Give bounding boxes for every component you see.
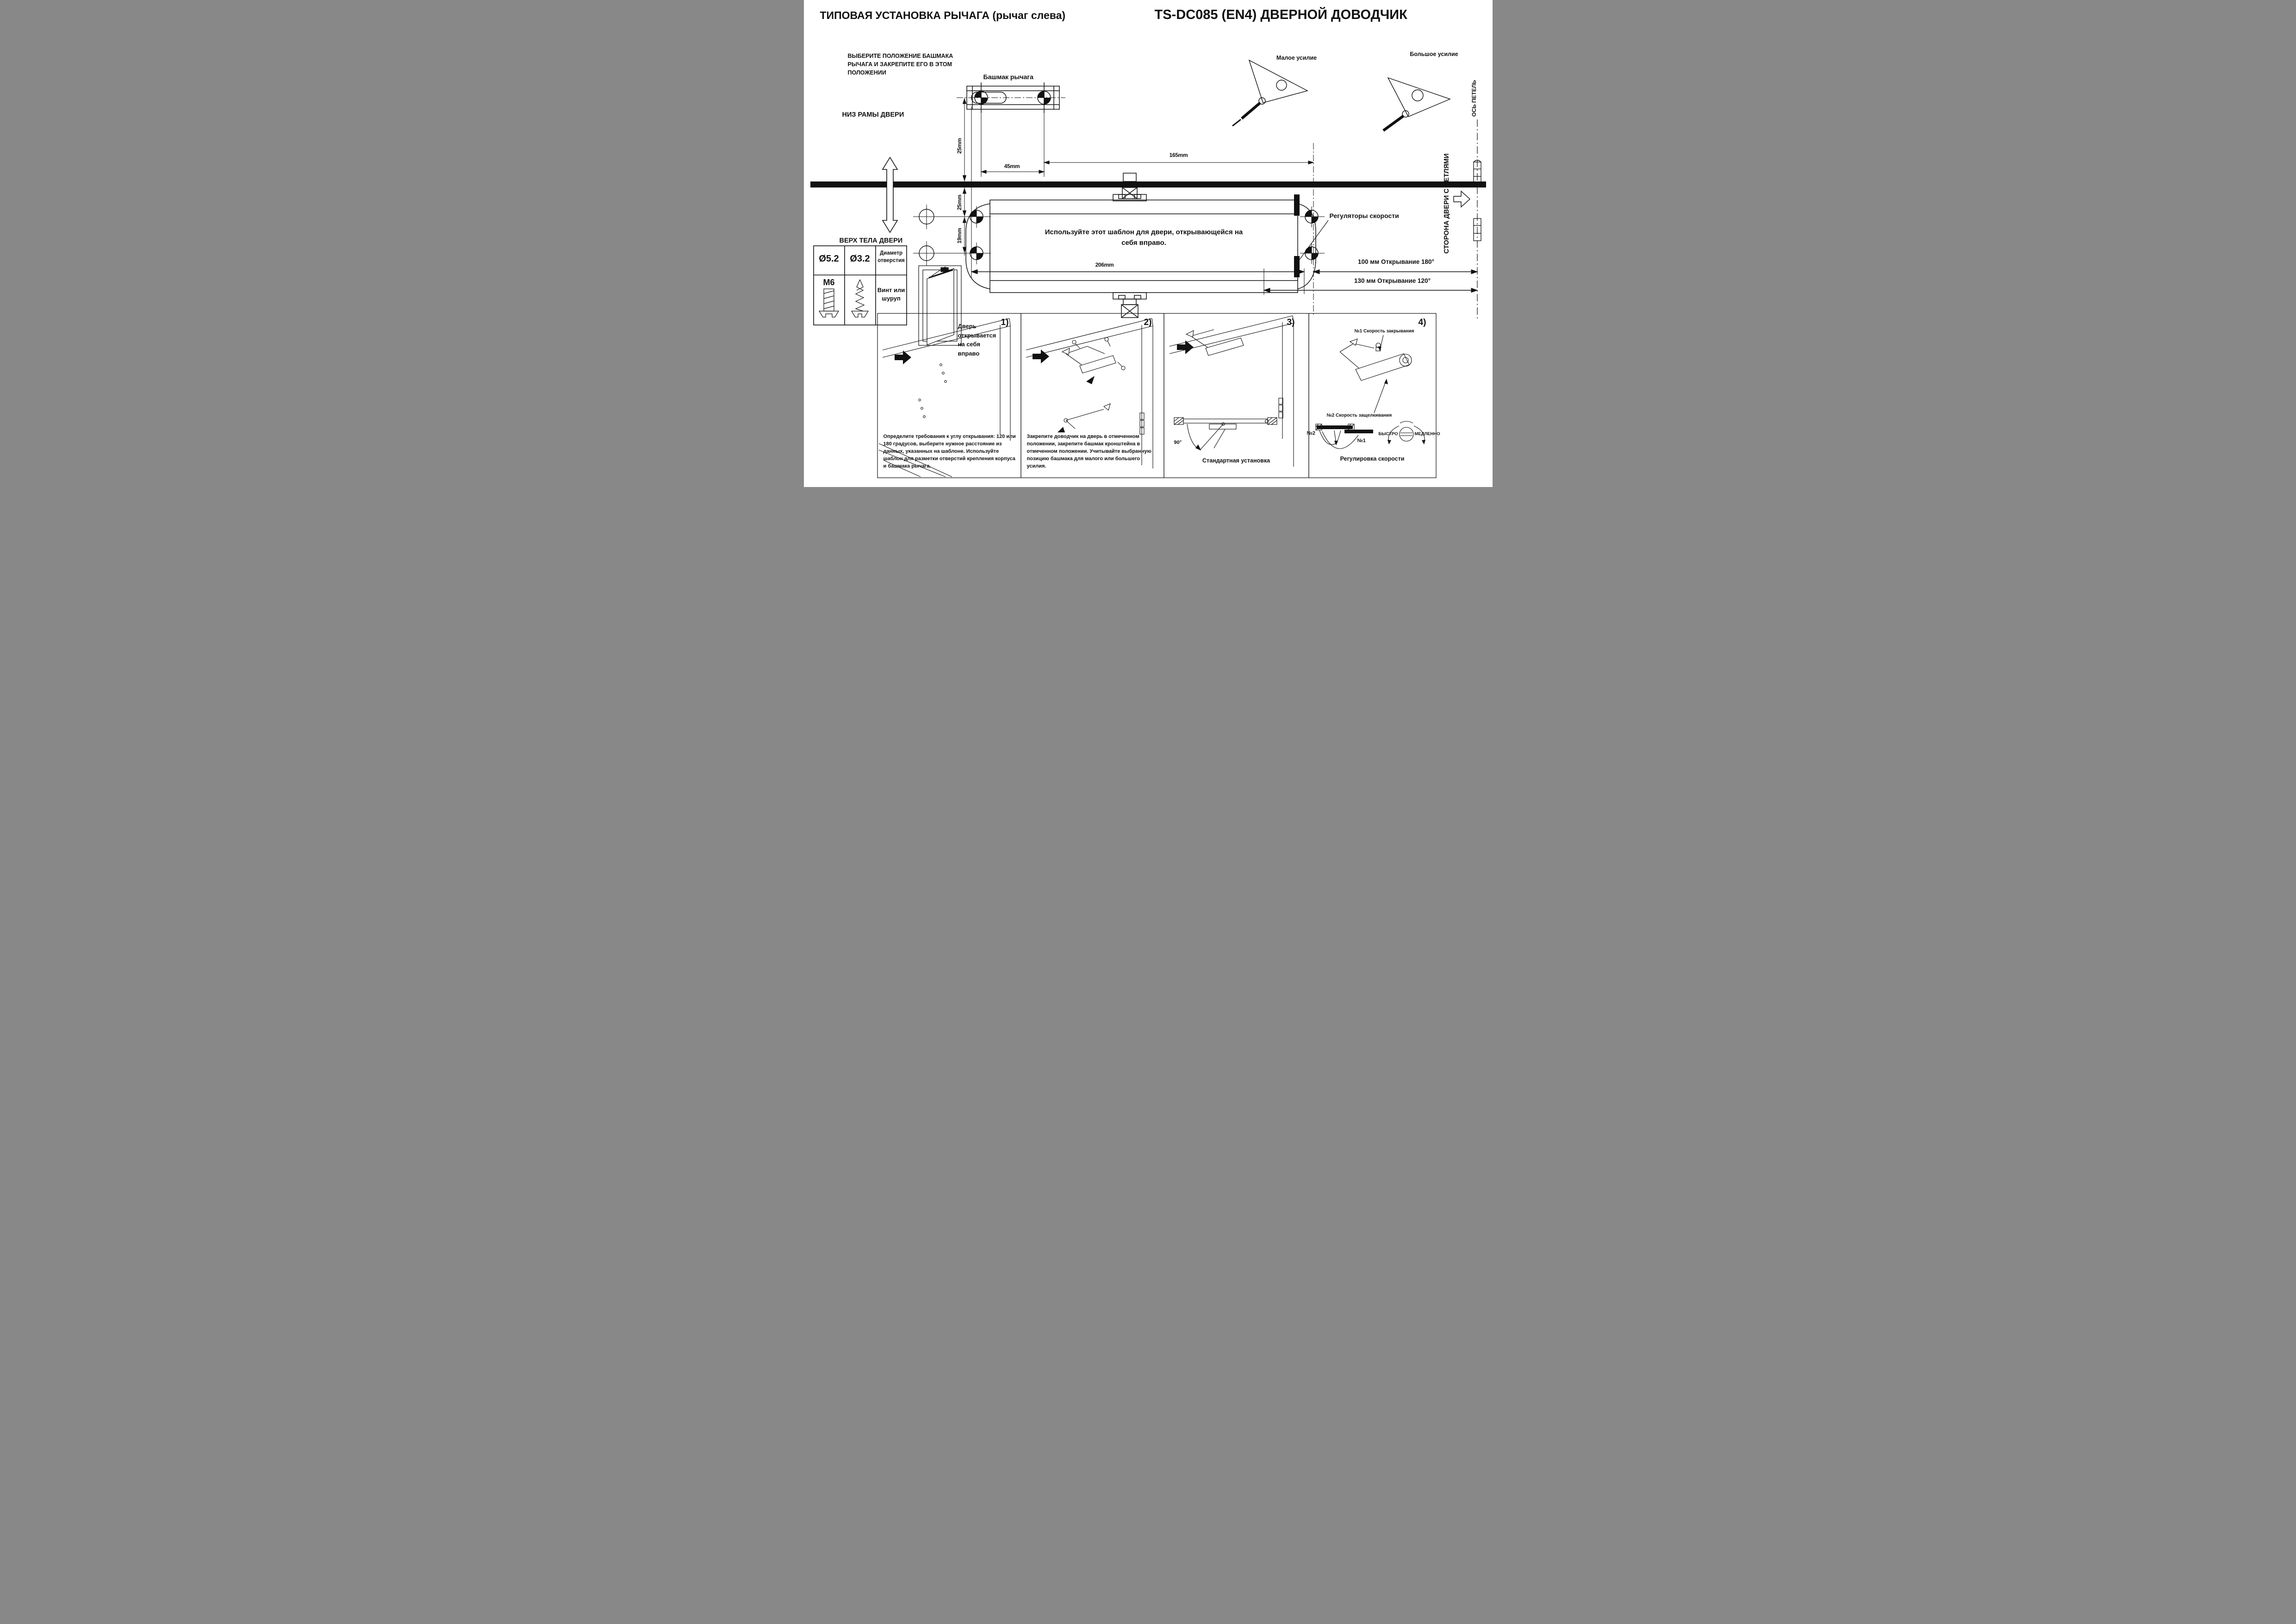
dim-19mm: 19mm — [956, 228, 963, 244]
panel4-drawing — [1316, 335, 1425, 449]
note-select-position: ВЫБЕРИТЕ ПОЛОЖЕНИЕ БАШМАКА РЫЧАГА И ЗАКР… — [848, 52, 969, 77]
panel4-n1: №1 — [1357, 438, 1366, 443]
label-hinge-axis: ОСЬ ПЕТЕЛЬ — [1471, 80, 1477, 117]
panel3-number: 3) — [1287, 318, 1295, 328]
panel3-angle: 90° — [1174, 440, 1182, 445]
hinge-side-arrow — [1454, 191, 1470, 207]
arm-shoe-drawing — [957, 82, 1065, 113]
panel3-drawing — [1170, 316, 1294, 467]
door-3d-sketch — [919, 266, 961, 345]
dim-25mm-top: 25mm — [956, 138, 963, 154]
panel4-number: 4) — [1419, 318, 1426, 328]
label-small-force: Малое усилие — [1271, 54, 1322, 62]
label-door-body-top: ВЕРХ ТЕЛА ДВЕРИ — [840, 237, 903, 244]
dim-open-120: 130 мм Открывание 120° — [1319, 277, 1467, 284]
small-force-bracket-drawing — [1232, 60, 1307, 126]
table-hole-small: Ø3.2 — [845, 254, 876, 264]
frame-door-separation-line — [810, 181, 1486, 187]
panel4-speed-latch-label: №2 Скорость защелкивания — [1327, 413, 1392, 418]
panel2-number: 2) — [1144, 318, 1152, 328]
dim-165mm: 165mm — [1156, 152, 1202, 158]
page-title-left: ТИПОВАЯ УСТАНОВКА РЫЧАГА (рычаг слева) — [820, 9, 1066, 22]
dim-45mm: 45mm — [991, 163, 1033, 169]
table-screw-title: Винт или шуруп — [877, 286, 906, 303]
panel3-caption: Стандартная установка — [1164, 457, 1309, 464]
panel1-number: 1) — [1001, 318, 1009, 328]
dimension-100mm — [1313, 270, 1477, 274]
panel4-slow: МЕДЛЕННО — [1415, 431, 1440, 437]
panel4-n2: №2 — [1307, 431, 1315, 436]
dim-25mm-bottom: 25mm — [956, 195, 963, 211]
frame-door-double-arrow — [883, 157, 897, 232]
dim-206mm: 206mm — [1082, 262, 1128, 268]
label-frame-bottom: НИЗ РАМЫ ДВЕРИ — [842, 111, 904, 119]
table-hole-big: Ø5.2 — [814, 254, 845, 264]
label-door-opens-right: Дверь открывается на себя вправо — [958, 322, 1002, 358]
dim-open-180: 100 мм Открывание 180° — [1322, 258, 1470, 265]
tapping-screw-icon — [852, 280, 868, 317]
panel1-text: Определите требования к углу открывания:… — [884, 433, 1017, 470]
label-speed-regulators: Регуляторы скорости — [1330, 212, 1399, 219]
panel2-text: Закрепите доводчик на дверь в отмеченном… — [1027, 433, 1157, 470]
table-bolt-label: M6 — [814, 278, 845, 287]
installation-template-sheet: ТИПОВАЯ УСТАНОВКА РЫЧАГА (рычаг слева) T… — [804, 0, 1493, 487]
panel4-fast: БЫСТРО — [1374, 431, 1398, 437]
template-note: Используйте этот шаблон для двери, откры… — [1045, 227, 1244, 249]
big-force-bracket-drawing — [1383, 78, 1450, 131]
label-arm-shoe: Башмак рычага — [983, 73, 1033, 81]
page-title-right: TS-DC085 (EN4) ДВЕРНОЙ ДОВОДЧИК — [1155, 7, 1407, 23]
machine-screw-icon — [819, 289, 839, 317]
table-hole-title: Диаметр отверстия — [877, 250, 906, 264]
label-big-force: Большое усилие — [1406, 50, 1462, 59]
panel4-speed-close-label: №1 Скорость закрывания — [1355, 329, 1414, 334]
panel4-caption: Регулировка скорости — [1309, 456, 1436, 462]
label-hinge-side: СТОРОНА ДВЕРИ С ПЕТЛЯМИ — [1443, 154, 1450, 254]
